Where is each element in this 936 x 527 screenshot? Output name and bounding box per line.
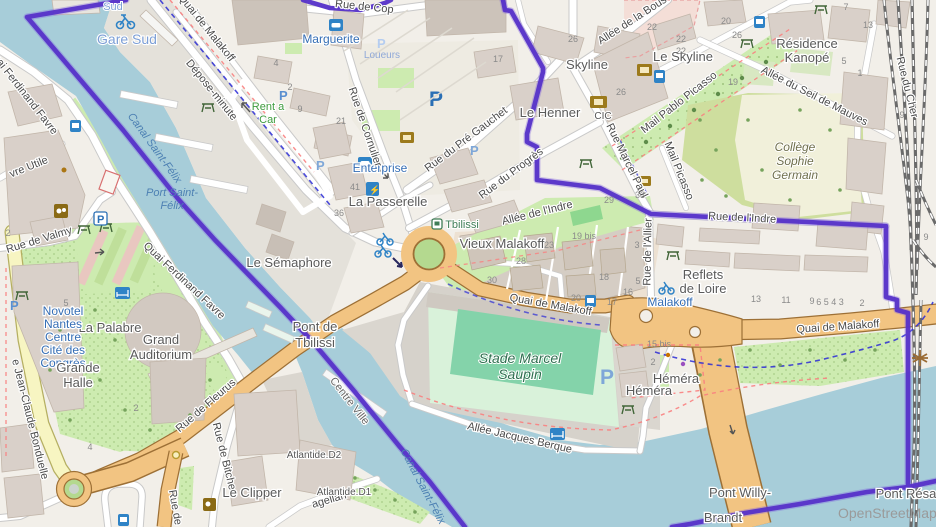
svg-text:30: 30 [487,275,497,285]
svg-text:22: 22 [647,22,657,32]
svg-text:3: 3 [634,240,639,250]
svg-text:Tbilissi: Tbilissi [445,219,479,231]
svg-text:Halle: Halle [63,375,93,390]
svg-text:13: 13 [863,20,873,30]
svg-text:4: 4 [87,442,92,452]
svg-text:Résidence: Résidence [776,36,837,51]
svg-text:P: P [316,158,325,173]
svg-text:P: P [10,298,19,313]
svg-text:Le Henner: Le Henner [520,105,581,120]
svg-text:28: 28 [516,256,526,266]
svg-text:29: 29 [604,195,614,205]
svg-text:Le Clipper: Le Clipper [222,485,282,500]
svg-text:Cité des: Cité des [41,343,85,357]
svg-text:41: 41 [350,182,360,192]
svg-text:5: 5 [841,56,846,66]
svg-text:9: 9 [923,232,928,242]
svg-text:2: 2 [650,357,655,367]
svg-text:Atlantide.D2: Atlantide.D2 [287,450,342,461]
svg-text:2: 2 [287,82,292,92]
svg-text:1: 1 [857,68,862,78]
svg-text:La Palabre: La Palabre [79,320,142,335]
svg-text:P: P [600,366,614,389]
svg-text:6 5 4 3: 6 5 4 3 [816,297,844,307]
svg-text:15 bis: 15 bis [647,339,672,349]
svg-text:CIC: CIC [594,111,611,122]
svg-text:26: 26 [732,30,742,40]
svg-text:Collège: Collège [775,140,816,154]
svg-text:Pont Willy-: Pont Willy- [709,485,771,500]
svg-text:Vieux Malakoff: Vieux Malakoff [460,236,545,251]
svg-text:9: 9 [809,296,814,306]
svg-text:Gare Sud: Gare Sud [97,31,157,47]
svg-text:2: 2 [133,403,138,413]
svg-text:Sud: Sud [103,1,123,13]
svg-text:19: 19 [728,77,738,87]
svg-text:Reflets: Reflets [683,267,724,282]
svg-text:22: 22 [676,46,686,56]
svg-text:OpenStreetMap: OpenStreetMap [838,505,936,521]
svg-text:Grand: Grand [143,332,179,347]
svg-text:Saupin: Saupin [498,366,542,382]
svg-text:22: 22 [676,34,686,44]
svg-text:Héméra: Héméra [626,383,673,398]
svg-text:2: 2 [5,228,10,238]
svg-text:7: 7 [843,2,848,12]
svg-text:9: 9 [297,104,302,114]
svg-text:La Passerelle: La Passerelle [349,194,428,209]
svg-text:Pont Résa: Pont Résa [876,486,936,501]
svg-text:16: 16 [623,287,633,297]
svg-text:9: 9 [899,110,904,120]
svg-text:Nantes: Nantes [44,317,82,331]
svg-text:21: 21 [336,116,346,126]
svg-text:Skyline: Skyline [566,57,608,72]
svg-text:Port Saint-: Port Saint- [146,187,198,199]
svg-text:5: 5 [63,298,68,308]
svg-text:36: 36 [334,208,344,218]
svg-text:20: 20 [571,293,581,303]
svg-text:20: 20 [721,16,731,26]
svg-text:33: 33 [635,190,645,200]
svg-text:Rue de l'Allier: Rue de l'Allier [641,218,654,286]
svg-text:11: 11 [781,295,790,305]
svg-text:13: 13 [751,294,761,304]
svg-text:Loueurs: Loueurs [364,50,400,61]
svg-text:5: 5 [635,276,640,286]
svg-text:Car: Car [259,114,277,126]
svg-text:Marguerite: Marguerite [302,32,360,46]
svg-text:Kanopé: Kanopé [785,50,830,65]
svg-text:Pont de: Pont de [293,319,338,334]
svg-text:Le Sémaphore: Le Sémaphore [246,255,331,270]
svg-text:Tbilissi: Tbilissi [295,335,335,350]
svg-text:17: 17 [607,297,617,307]
svg-text:26: 26 [568,34,578,44]
svg-text:Stade Marcel: Stade Marcel [479,350,562,366]
svg-text:Brandt: Brandt [704,510,743,525]
svg-text:26: 26 [616,87,626,97]
svg-text:2: 2 [859,298,864,308]
svg-text:Germain: Germain [772,168,818,182]
svg-text:Sophie: Sophie [776,154,814,168]
svg-text:Auditorium: Auditorium [130,347,192,362]
svg-text:19 bis: 19 bis [572,231,597,241]
svg-text:18: 18 [599,272,609,282]
svg-text:Rent a: Rent a [252,101,285,113]
svg-text:4: 4 [273,58,278,68]
svg-text:23: 23 [544,240,554,250]
svg-text:P: P [97,214,104,226]
svg-text:Félix: Félix [160,200,184,212]
svg-text:Grande: Grande [56,360,99,375]
svg-text:de Loire: de Loire [680,281,727,296]
svg-text:Centre: Centre [45,330,81,344]
svg-text:Atlantide.D1: Atlantide.D1 [317,487,372,498]
svg-text:17: 17 [493,54,503,64]
svg-text:P: P [470,143,479,158]
svg-text:Malakoff: Malakoff [647,295,693,309]
